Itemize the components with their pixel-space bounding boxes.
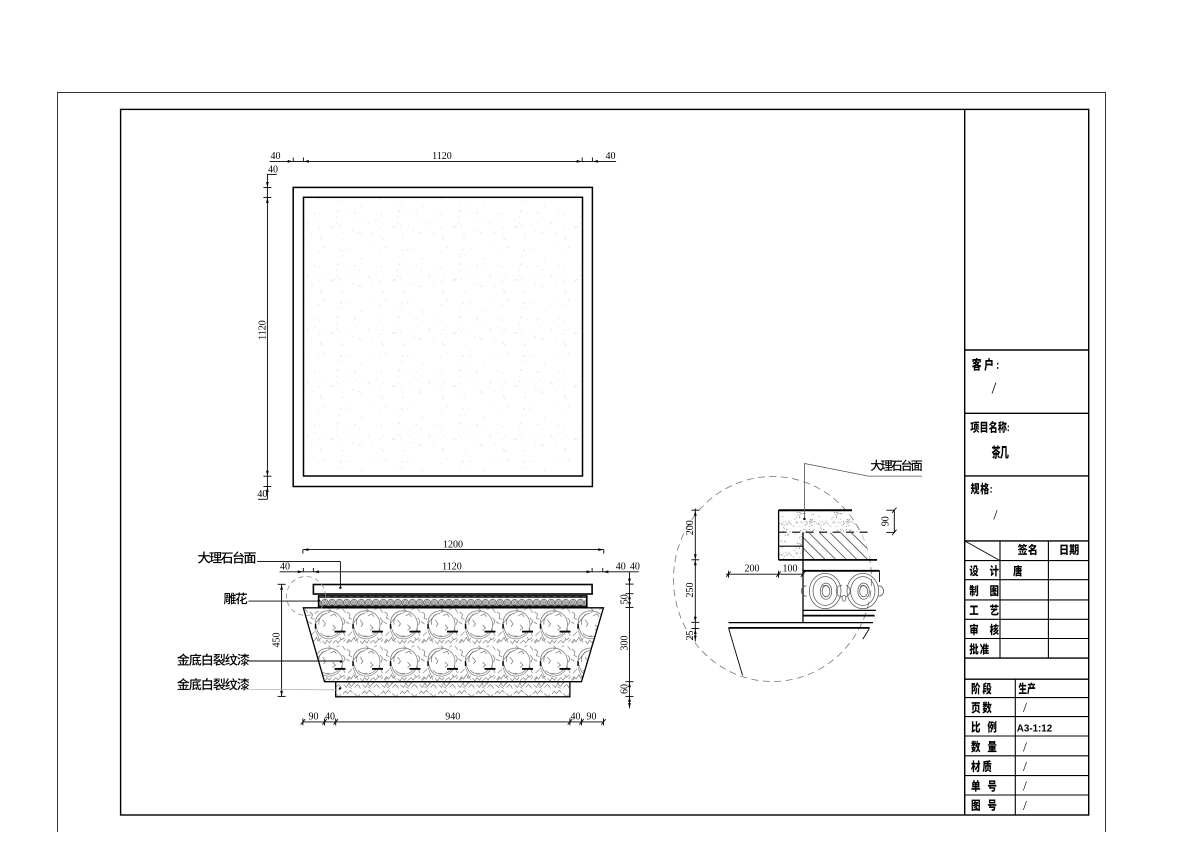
svg-text:40: 40 [630, 562, 640, 573]
svg-text:90: 90 [309, 711, 319, 722]
svg-text:60: 60 [619, 684, 630, 694]
svg-text:/: / [1023, 780, 1027, 795]
svg-text:40: 40 [257, 489, 267, 500]
svg-text:90: 90 [587, 711, 597, 722]
svg-text:200: 200 [745, 564, 760, 575]
svg-text:40: 40 [268, 164, 278, 175]
svg-text:100: 100 [783, 564, 798, 575]
svg-text:90: 90 [881, 516, 892, 526]
svg-text:300: 300 [619, 636, 630, 651]
svg-text:1120: 1120 [432, 151, 452, 162]
svg-text:1120: 1120 [257, 320, 268, 340]
svg-text:25: 25 [685, 631, 696, 641]
svg-text:/: / [1023, 760, 1027, 775]
svg-text:/: / [1023, 740, 1027, 755]
svg-text:/: / [1023, 799, 1027, 814]
svg-text:/: / [992, 379, 997, 398]
svg-text:/: / [1023, 701, 1027, 716]
svg-text:1200: 1200 [443, 539, 463, 550]
svg-text:250: 250 [685, 583, 696, 598]
svg-text:450: 450 [271, 633, 282, 648]
svg-text:A3-1:12: A3-1:12 [1017, 724, 1053, 735]
svg-text:50: 50 [619, 594, 630, 604]
svg-text:40: 40 [616, 562, 626, 573]
svg-text:40: 40 [325, 711, 335, 722]
svg-text:200: 200 [685, 520, 696, 535]
svg-text:40: 40 [271, 151, 281, 162]
svg-text:40: 40 [606, 151, 616, 162]
svg-text:1120: 1120 [442, 562, 462, 573]
svg-text:40: 40 [280, 562, 290, 573]
svg-text:40: 40 [571, 711, 581, 722]
svg-text:940: 940 [445, 711, 460, 722]
